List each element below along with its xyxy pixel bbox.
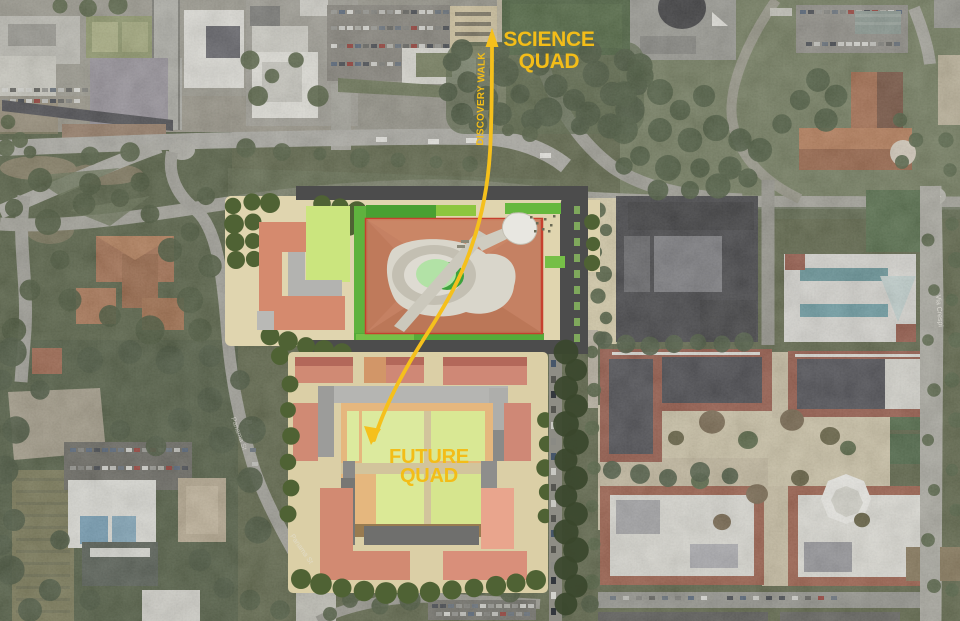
svg-text:QUAD: QUAD <box>400 465 458 487</box>
svg-text:DISCOVERY WALK: DISCOVERY WALK <box>475 52 488 146</box>
svg-text:QUAD: QUAD <box>519 50 580 73</box>
svg-text:SCIENCE: SCIENCE <box>503 28 595 51</box>
